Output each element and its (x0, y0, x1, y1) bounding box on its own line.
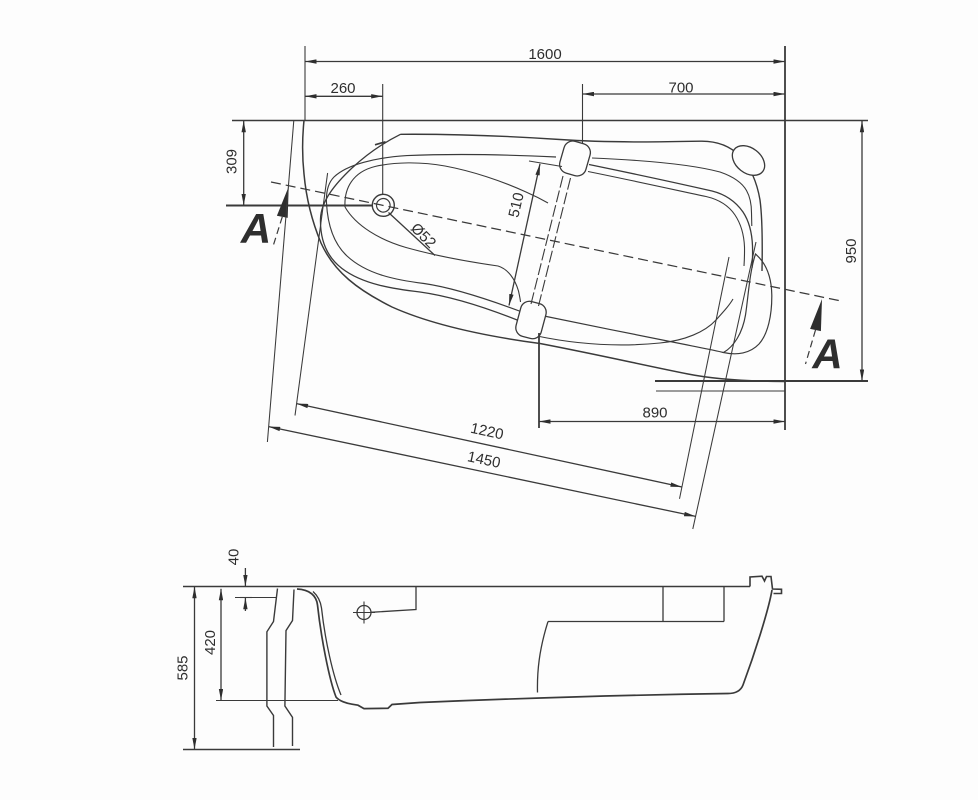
svg-text:309: 309 (224, 149, 241, 174)
svg-text:700: 700 (668, 80, 693, 97)
svg-text:A: A (240, 205, 271, 252)
svg-text:A: A (811, 331, 842, 378)
svg-text:510: 510 (506, 191, 528, 219)
svg-text:1600: 1600 (528, 46, 561, 63)
svg-text:420: 420 (202, 630, 219, 655)
svg-text:Ø52: Ø52 (407, 220, 439, 252)
svg-text:950: 950 (843, 238, 860, 263)
svg-text:260: 260 (330, 80, 355, 97)
svg-text:585: 585 (175, 655, 192, 680)
svg-text:890: 890 (642, 405, 667, 422)
svg-text:40: 40 (226, 549, 243, 566)
svg-text:1450: 1450 (466, 448, 502, 472)
svg-text:1220: 1220 (469, 420, 505, 444)
